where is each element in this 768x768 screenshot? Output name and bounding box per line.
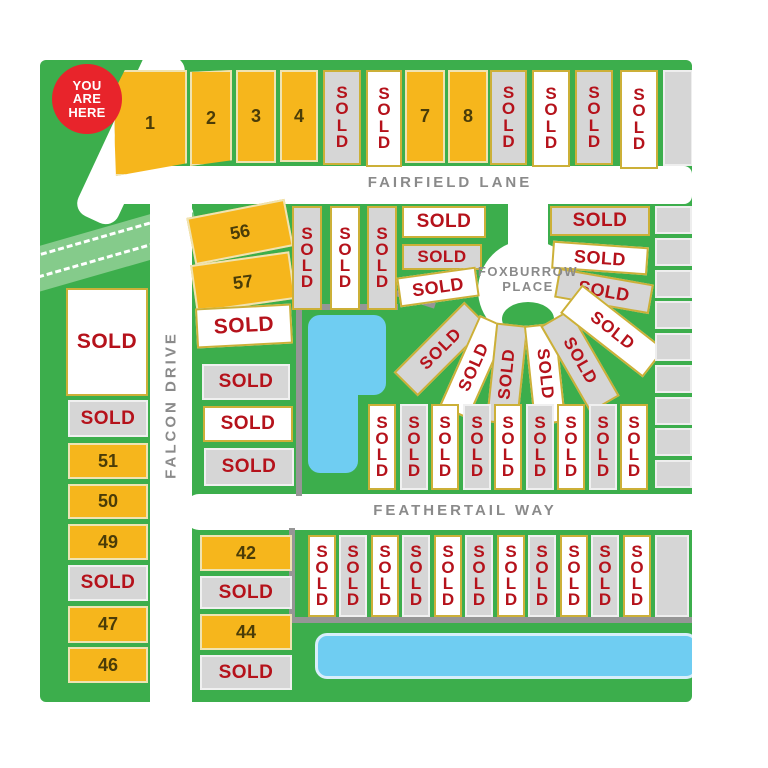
street-label-feathertail-way: FEATHERTAIL WAY	[320, 502, 610, 519]
lot-unlabeled	[655, 460, 692, 488]
lot-sold: SOLD	[550, 206, 650, 236]
lot-7: 7	[405, 70, 445, 163]
pond-south	[315, 633, 692, 679]
lot-sold: SOLD	[560, 535, 588, 617]
lot-number: 42	[236, 543, 256, 564]
lot-unlabeled	[655, 428, 692, 456]
lot-number: 57	[232, 270, 255, 294]
lot-sold: SOLD	[465, 535, 493, 617]
lot-sold: SOLD	[490, 70, 527, 165]
lot-number: 51	[98, 451, 118, 472]
lot-sold: SOLD	[66, 288, 148, 396]
lot-number: 44	[236, 622, 256, 643]
lot-sold: SOLD	[330, 206, 360, 310]
lot-46: 46	[68, 647, 148, 683]
lot-number: 46	[98, 655, 118, 676]
you-are-here-badge: YOU ARE HERE	[52, 64, 122, 134]
badge-line1: YOU	[72, 79, 101, 92]
lot-number: 4	[294, 106, 304, 127]
lot-sold: SOLD	[620, 404, 648, 490]
lot-number: 2	[206, 108, 216, 129]
lot-sold: SOLD	[203, 406, 293, 442]
lot-sold: SOLD	[400, 404, 428, 490]
lot-49: 49	[68, 524, 148, 560]
subdivision-map: 1 2 3 4 SOLD SOLD 7 8 SOLD SOLD SOLD SOL…	[40, 60, 692, 702]
lot-sold: SOLD	[366, 70, 402, 167]
street-label-fairfield-lane: FAIRFIELD LANE	[290, 174, 610, 191]
lot-number: 8	[463, 106, 473, 127]
lot-number: 7	[420, 106, 430, 127]
lot-unlabeled	[663, 70, 692, 166]
lot-unlabeled	[655, 270, 692, 298]
pond-middle-lower	[308, 350, 358, 473]
lot-sold: SOLD	[368, 404, 396, 490]
lot-sold: SOLD	[434, 535, 462, 617]
lot-3: 3	[236, 70, 276, 163]
foxburrow-line2: PLACE	[458, 280, 598, 295]
lot-sold: SOLD	[292, 206, 322, 310]
badge-line2: ARE	[73, 92, 101, 105]
lot-sold: SOLD	[431, 404, 459, 490]
street-label-foxburrow-place: FOXBURROW PLACE	[458, 265, 598, 295]
lot-unlabeled	[655, 238, 692, 266]
lot-sold: SOLD	[532, 70, 570, 167]
lot-sold: SOLD	[589, 404, 617, 490]
lot-sold: SOLD	[620, 70, 658, 169]
lot-42: 42	[200, 535, 292, 571]
lot-50: 50	[68, 484, 148, 519]
lot-sold: SOLD	[526, 404, 554, 490]
lot-1: 1	[113, 70, 187, 176]
lot-sold: SOLD	[402, 535, 430, 617]
lot-sold: SOLD	[623, 535, 651, 617]
lot-number: 47	[98, 614, 118, 635]
lot-sold: SOLD	[202, 364, 290, 400]
lot-sold: SOLD	[494, 404, 522, 490]
lot-sold: SOLD	[339, 535, 367, 617]
lot-44: 44	[200, 614, 292, 650]
trail-mid-vertical	[296, 310, 302, 496]
lot-sold: SOLD	[575, 70, 613, 165]
lot-sold: SOLD	[367, 206, 397, 310]
lot-sold: SOLD	[204, 448, 294, 486]
lot-4: 4	[280, 70, 318, 162]
street-label-falcon-drive: FALCON DRIVE	[163, 331, 180, 479]
trail-south-horizontal	[289, 617, 692, 623]
lot-sold: SOLD	[200, 655, 292, 690]
badge-line3: HERE	[68, 106, 105, 119]
lot-unlabeled	[655, 365, 692, 393]
lot-sold: SOLD	[402, 206, 486, 238]
lot-sold: SOLD	[528, 535, 556, 617]
lot-2: 2	[190, 70, 232, 166]
lot-51: 51	[68, 443, 148, 479]
lot-sold: SOLD	[591, 535, 619, 617]
lot-sold: SOLD	[200, 576, 292, 609]
lot-sold: SOLD	[308, 535, 336, 617]
lot-unlabeled	[655, 333, 692, 361]
lot-sold: SOLD	[557, 404, 585, 490]
lot-sold: SOLD	[463, 404, 491, 490]
lot-unlabeled	[655, 397, 692, 425]
lot-unlabeled	[655, 206, 692, 234]
lot-sold: SOLD	[497, 535, 525, 617]
lot-unlabeled	[655, 535, 689, 617]
lot-sold: SOLD	[68, 565, 148, 601]
lot-number: 1	[145, 113, 155, 134]
lot-number: 50	[98, 491, 118, 512]
lot-sold: SOLD	[68, 400, 148, 437]
lot-sold: SOLD	[371, 535, 399, 617]
lot-number: 49	[98, 532, 118, 553]
lot-sold: SOLD	[195, 304, 293, 349]
lot-8: 8	[448, 70, 488, 163]
lot-47: 47	[68, 606, 148, 643]
lot-unlabeled	[655, 301, 692, 329]
foxburrow-line1: FOXBURROW	[458, 265, 598, 280]
lot-number: 56	[228, 220, 252, 244]
lot-sold: SOLD	[323, 70, 361, 165]
lot-number: 3	[251, 106, 261, 127]
